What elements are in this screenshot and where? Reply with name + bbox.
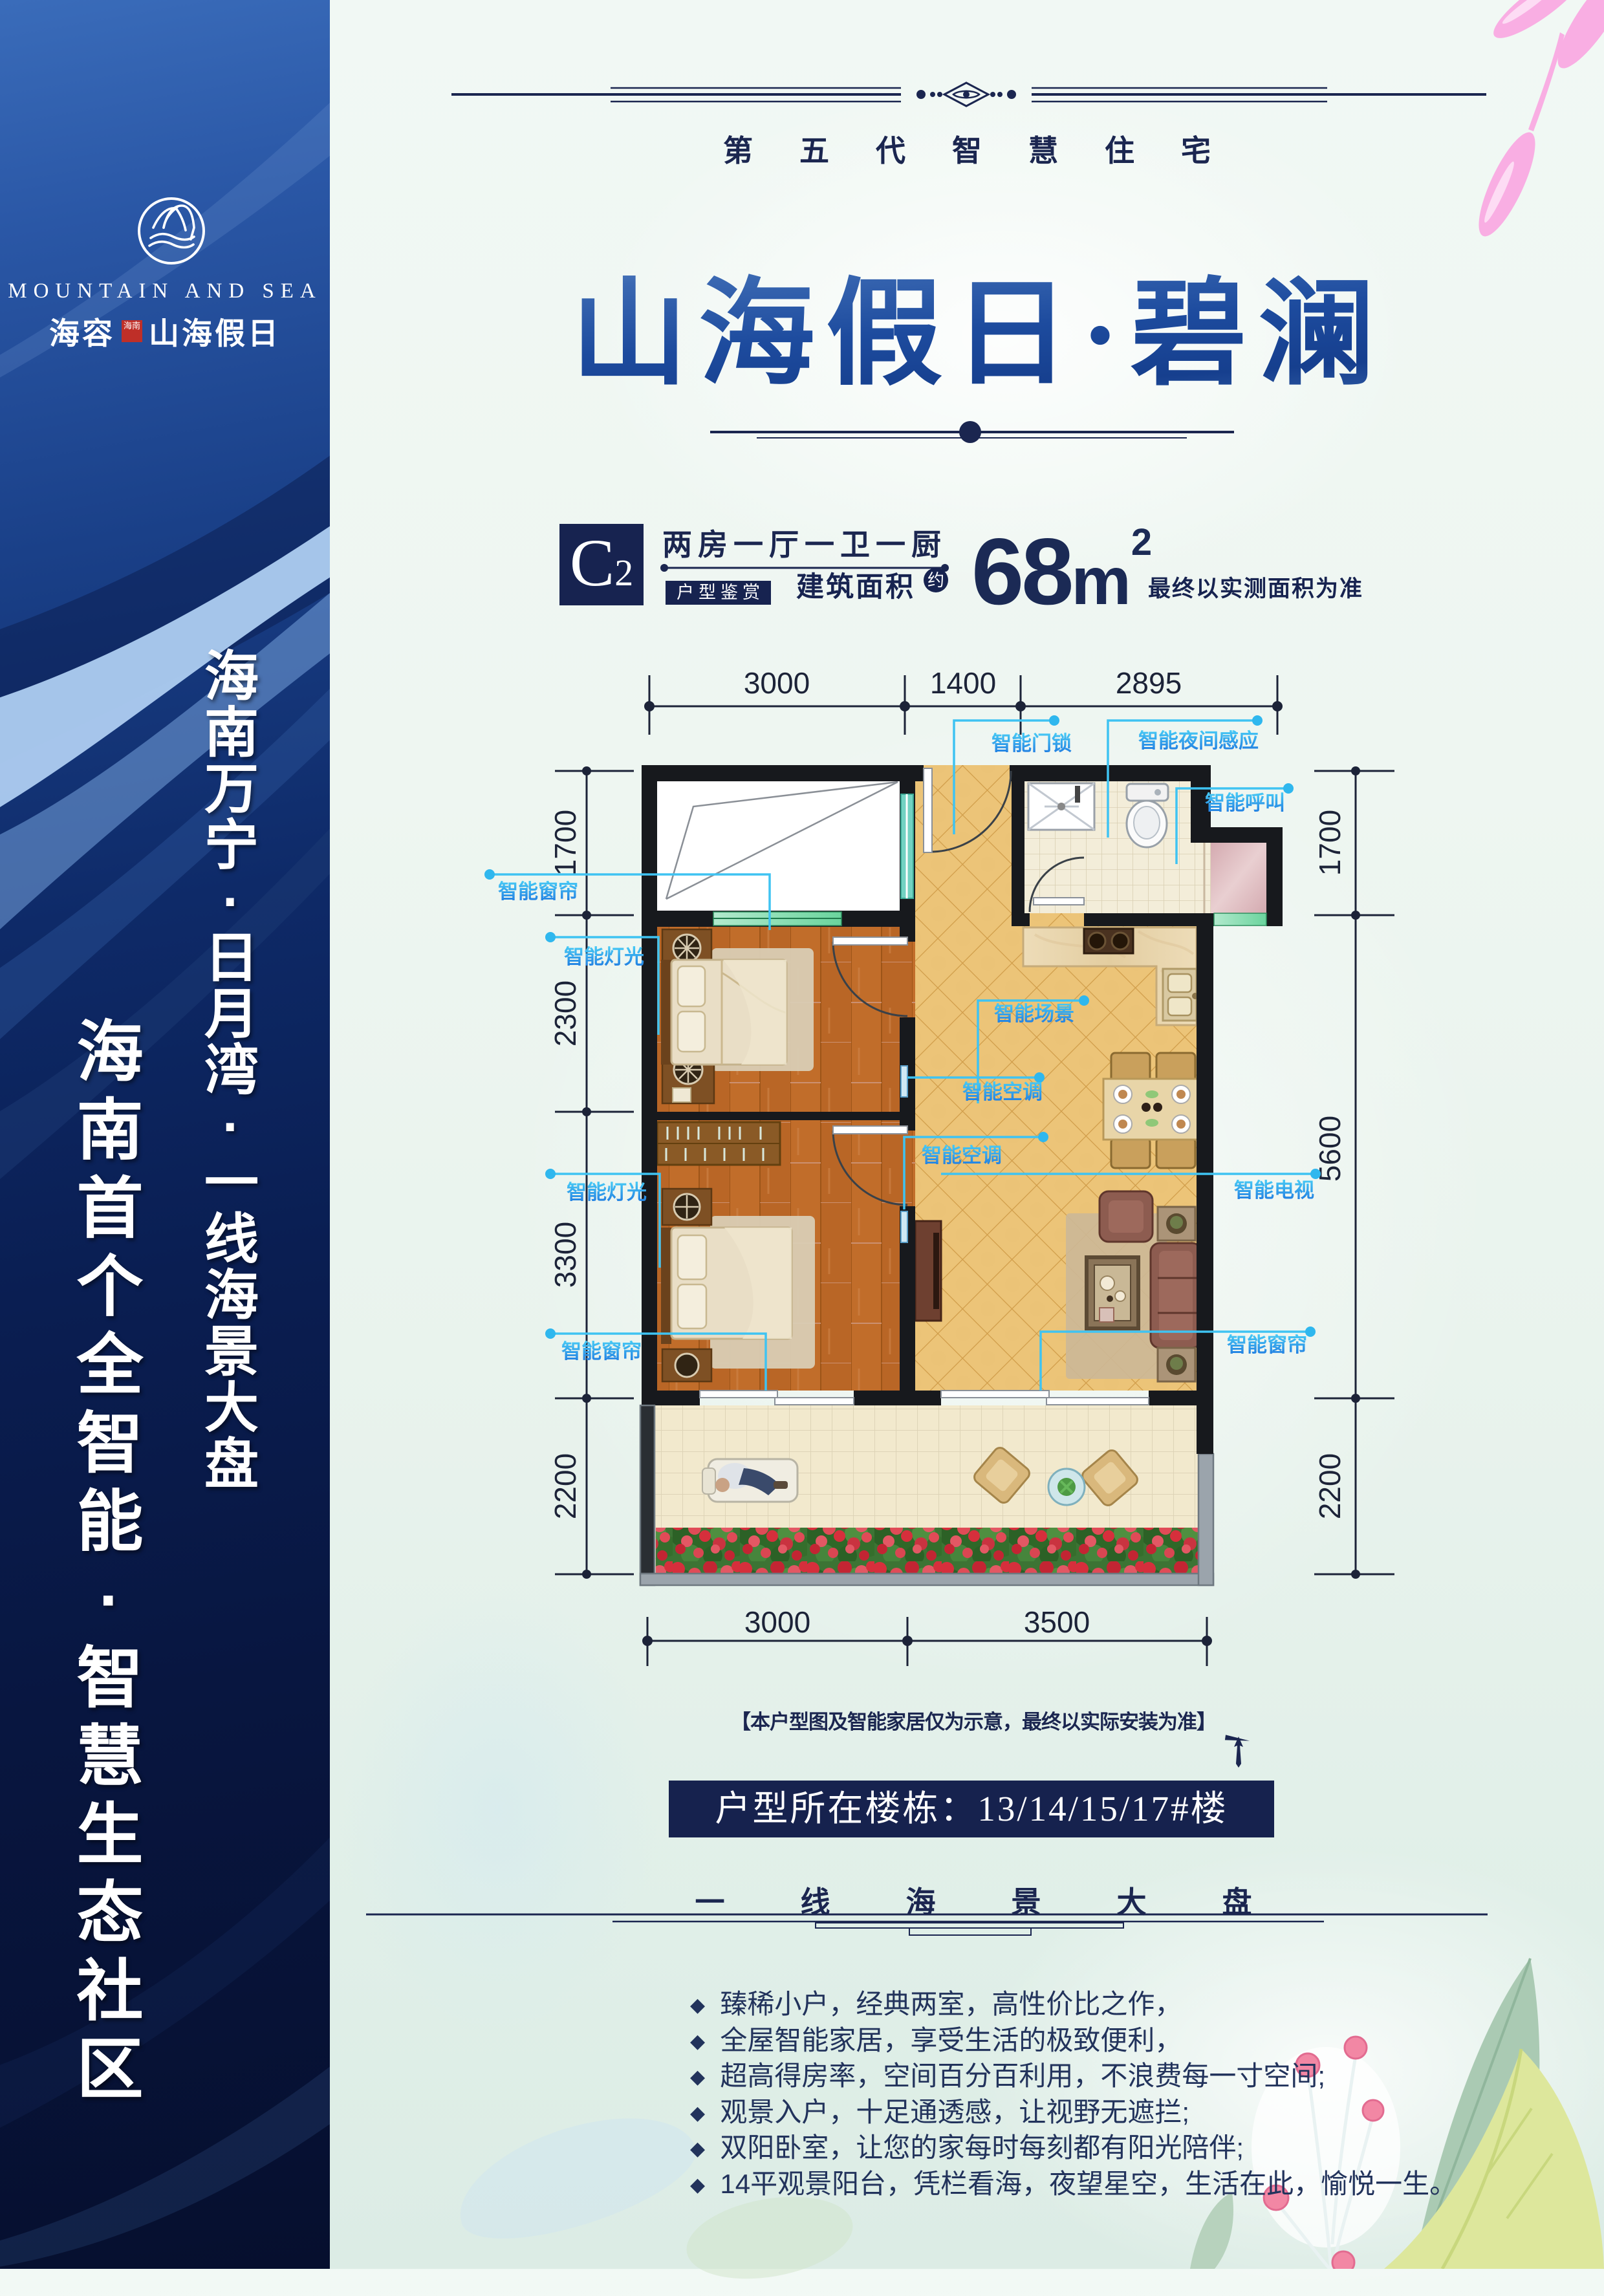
- svg-text:智能窗帘: 智能窗帘: [561, 1340, 642, 1363]
- svg-text:3500: 3500: [1024, 1605, 1090, 1639]
- svg-text:3000: 3000: [744, 1605, 810, 1639]
- svg-text:智能呼叫: 智能呼叫: [1205, 792, 1285, 814]
- svg-text:2200: 2200: [1313, 1453, 1347, 1519]
- svg-text:智能灯光: 智能灯光: [567, 1181, 647, 1204]
- svg-text:智能场景: 智能场景: [994, 1002, 1074, 1025]
- svg-text:3000: 3000: [744, 666, 810, 700]
- svg-text:2200: 2200: [548, 1453, 582, 1519]
- svg-text:智能空调: 智能空调: [922, 1144, 1002, 1167]
- svg-text:1700: 1700: [548, 810, 582, 876]
- svg-text:智能门锁: 智能门锁: [992, 732, 1072, 755]
- svg-text:3300: 3300: [548, 1222, 582, 1288]
- svg-text:1400: 1400: [930, 666, 996, 700]
- svg-text:智能窗帘: 智能窗帘: [498, 880, 578, 903]
- svg-text:智能夜间感应: 智能夜间感应: [1138, 730, 1259, 752]
- svg-text:智能窗帘: 智能窗帘: [1227, 1334, 1307, 1356]
- svg-text:1700: 1700: [1313, 810, 1347, 876]
- svg-text:智能灯光: 智能灯光: [564, 946, 644, 968]
- svg-text:智能电视: 智能电视: [1234, 1179, 1314, 1202]
- svg-text:2895: 2895: [1116, 666, 1182, 700]
- svg-text:2300: 2300: [548, 980, 582, 1046]
- svg-text:智能空调: 智能空调: [962, 1081, 1043, 1103]
